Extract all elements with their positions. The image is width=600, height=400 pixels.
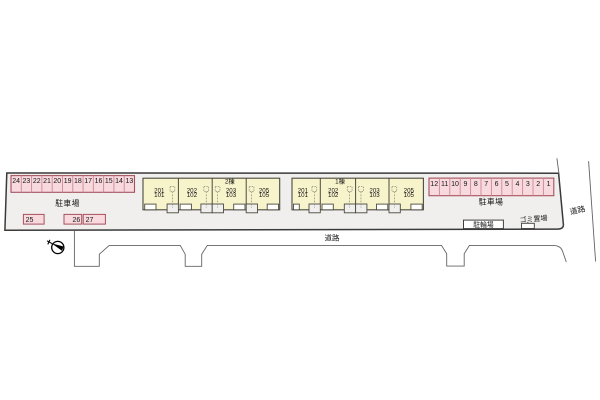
svg-text:駐輪場: 駐輪場 bbox=[473, 220, 494, 229]
svg-text:21: 21 bbox=[43, 178, 51, 185]
svg-text:道路: 道路 bbox=[325, 233, 340, 243]
svg-text:16: 16 bbox=[95, 178, 103, 185]
svg-text:2棟: 2棟 bbox=[225, 177, 236, 186]
svg-text:101: 101 bbox=[154, 192, 165, 199]
svg-text:10: 10 bbox=[451, 181, 459, 188]
svg-text:26: 26 bbox=[73, 217, 81, 224]
svg-text:8: 8 bbox=[474, 181, 478, 188]
svg-text:22: 22 bbox=[33, 178, 41, 185]
svg-text:駐車場: 駐車場 bbox=[479, 196, 504, 206]
svg-text:17: 17 bbox=[84, 178, 92, 185]
svg-text:1棟: 1棟 bbox=[335, 177, 346, 186]
svg-text:18: 18 bbox=[74, 178, 82, 185]
svg-text:15: 15 bbox=[105, 178, 113, 185]
svg-text:5: 5 bbox=[505, 181, 509, 188]
svg-text:105: 105 bbox=[404, 192, 415, 199]
svg-text:101: 101 bbox=[298, 192, 309, 199]
svg-text:13: 13 bbox=[125, 178, 133, 185]
svg-text:23: 23 bbox=[23, 178, 31, 185]
svg-text:25: 25 bbox=[26, 217, 34, 224]
svg-text:102: 102 bbox=[328, 192, 339, 199]
svg-text:103: 103 bbox=[226, 192, 237, 199]
svg-text:駐車場: 駐車場 bbox=[55, 198, 80, 208]
svg-text:道路: 道路 bbox=[569, 203, 587, 216]
svg-text:7: 7 bbox=[484, 181, 488, 188]
svg-text:1: 1 bbox=[547, 181, 551, 188]
svg-text:11: 11 bbox=[441, 181, 448, 188]
svg-text:105: 105 bbox=[259, 192, 270, 199]
svg-text:27: 27 bbox=[86, 217, 94, 224]
svg-text:9: 9 bbox=[463, 181, 467, 188]
svg-text:20: 20 bbox=[53, 178, 61, 185]
svg-text:3: 3 bbox=[526, 181, 530, 188]
svg-text:12: 12 bbox=[430, 181, 438, 188]
svg-text:19: 19 bbox=[64, 178, 72, 185]
svg-text:2: 2 bbox=[536, 181, 540, 188]
svg-text:4: 4 bbox=[515, 181, 519, 188]
svg-text:6: 6 bbox=[495, 181, 499, 188]
svg-text:14: 14 bbox=[115, 178, 123, 185]
svg-text:24: 24 bbox=[12, 178, 20, 185]
svg-text:103: 103 bbox=[369, 192, 380, 199]
svg-text:102: 102 bbox=[187, 192, 198, 199]
